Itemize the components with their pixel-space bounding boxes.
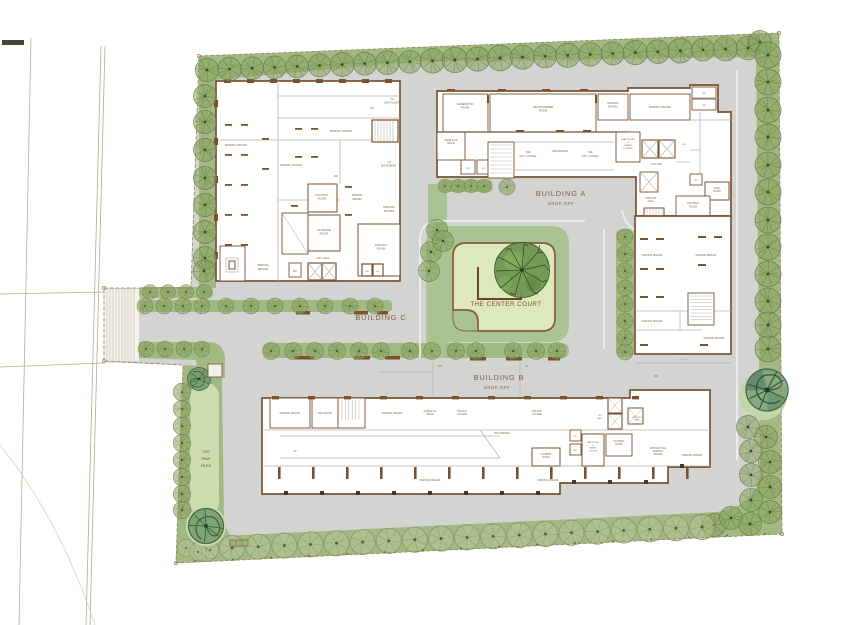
- svg-text:PARKING SPACES: PARKING SPACES: [649, 105, 672, 109]
- svg-text:2ND FLOOR: 2ND FLOOR: [384, 101, 400, 105]
- svg-text:ROOM: ROOM: [689, 205, 697, 208]
- svg-text:PARKING SPACES: PARKING SPACES: [642, 254, 663, 257]
- svg-text:MAIL ROOM: MAIL ROOM: [587, 441, 599, 444]
- svg-text:THE ARRIVAL: THE ARRIVAL: [552, 149, 569, 153]
- svg-text:ROOM: ROOM: [377, 247, 386, 251]
- svg-text:PARKING SPACES: PARKING SPACES: [280, 163, 303, 167]
- svg-text:PARKING: PARKING: [352, 194, 363, 197]
- svg-text:PARKING: PARKING: [653, 450, 663, 453]
- svg-text:PARKING SPACES: PARKING SPACES: [642, 320, 663, 323]
- svg-text:GENERATOR: GENERATOR: [457, 102, 474, 106]
- svg-text:SPACES: SPACES: [384, 209, 395, 213]
- svg-text:SPACE: SPACE: [447, 142, 455, 145]
- svg-text:ROOM: ROOM: [461, 106, 470, 110]
- svg-text:PARKING SPACES: PARKING SPACES: [696, 254, 717, 257]
- svg-text:DROP OFF: DROP OFF: [548, 201, 574, 206]
- svg-text:UP: UP: [370, 106, 374, 110]
- svg-text:PARKING SPACES: PARKING SPACES: [280, 412, 301, 415]
- svg-text:PARKING SPACES: PARKING SPACES: [682, 454, 702, 457]
- svg-text:SPACE: SPACE: [426, 413, 434, 416]
- svg-text:BUILDING B: BUILDING B: [474, 373, 525, 382]
- svg-text:SH: SH: [365, 271, 368, 273]
- svg-text:WC: WC: [482, 168, 486, 170]
- svg-text:SPACES: SPACES: [653, 453, 663, 456]
- svg-text:THE CENTER COURT: THE CENTER COURT: [470, 301, 541, 308]
- svg-text:SMART: SMART: [589, 447, 597, 450]
- svg-text:LIFT HALL: LIFT HALL: [316, 256, 330, 260]
- svg-text:UP: UP: [525, 366, 529, 368]
- svg-text:DAY LOUNGE: DAY LOUNGE: [582, 154, 599, 158]
- svg-text:BUILDING C: BUILDING C: [355, 313, 406, 322]
- svg-text:LOCKER: LOCKER: [624, 148, 633, 150]
- svg-text:SMART: SMART: [624, 144, 632, 147]
- svg-text:LOCKER: LOCKER: [589, 450, 598, 452]
- svg-text:PARKING: PARKING: [383, 205, 394, 209]
- svg-text:PARKING SPACES: PARKING SPACES: [225, 143, 248, 147]
- svg-text:ROOM: ROOM: [615, 444, 622, 446]
- svg-text:PAW: PAW: [202, 456, 211, 461]
- svg-text:LOUNGE: LOUNGE: [457, 413, 468, 416]
- svg-text:PARKING SPACES: PARKING SPACES: [704, 337, 725, 340]
- svg-text:DN: DN: [334, 174, 338, 178]
- svg-text:PARKING SPACES: PARKING SPACES: [382, 412, 403, 415]
- svg-text:WC: WC: [293, 270, 297, 273]
- svg-text:ROOM: ROOM: [542, 457, 549, 459]
- svg-text:PARKING SPACES: PARKING SPACES: [420, 479, 441, 482]
- svg-text:RWU ROOM: RWU ROOM: [318, 412, 332, 415]
- svg-text:PARKING SPACES: PARKING SPACES: [330, 129, 353, 133]
- svg-text:THE: THE: [525, 150, 530, 154]
- svg-text:ROOM: ROOM: [320, 232, 329, 236]
- svg-text:WC: WC: [466, 168, 470, 170]
- svg-text:WC: WC: [376, 271, 380, 273]
- svg-text:PARK: PARK: [201, 463, 212, 468]
- svg-text:LIFT HALL: LIFT HALL: [651, 163, 663, 166]
- svg-text:SPACES: SPACES: [352, 198, 362, 201]
- svg-text:HALL: HALL: [648, 200, 655, 203]
- svg-text:UP: UP: [293, 450, 297, 453]
- svg-text:ROOM: ROOM: [318, 197, 327, 201]
- svg-text:DN: DN: [654, 376, 658, 378]
- svg-text:MOTORCYCLE: MOTORCYCLE: [650, 448, 667, 450]
- svg-text:SPACES: SPACES: [608, 105, 618, 108]
- svg-text:HALL: HALL: [634, 419, 640, 422]
- svg-text:CONTROL: CONTROL: [613, 441, 625, 443]
- svg-text:THE ARRIVAL: THE ARRIVAL: [494, 432, 511, 435]
- svg-text:LAUNDRY: LAUNDRY: [541, 453, 552, 456]
- svg-text:GB: GB: [702, 93, 706, 95]
- svg-text:WC: WC: [694, 180, 698, 182]
- svg-text:LIFT: LIFT: [598, 415, 603, 417]
- svg-text:BUILDING A: BUILDING A: [536, 189, 586, 198]
- svg-text:TRANSFORMER: TRANSFORMER: [533, 105, 554, 109]
- svg-text:MAIL ROOM: MAIL ROOM: [622, 138, 635, 141]
- svg-text:MAID: MAID: [714, 187, 720, 190]
- svg-text:PARKING: PARKING: [257, 263, 268, 267]
- svg-text:DROP OFF: DROP OFF: [484, 385, 510, 390]
- svg-text:GRAB & GO: GRAB & GO: [424, 410, 437, 413]
- svg-text:ROOM: ROOM: [713, 191, 720, 193]
- svg-text:GB: GB: [702, 105, 706, 107]
- svg-text:THE: THE: [587, 150, 592, 154]
- svg-text:ROOM: ROOM: [539, 109, 548, 113]
- svg-text:SPACES: SPACES: [258, 267, 269, 271]
- svg-text:DAY LOUNGE: DAY LOUNGE: [520, 154, 537, 158]
- svg-text:DN: DN: [438, 366, 442, 368]
- svg-text:LOUNGE: LOUNGE: [532, 413, 543, 416]
- svg-text:90 / DUT: 90 / DUT: [679, 359, 688, 361]
- svg-text:PARKING SPACES: PARKING SPACES: [538, 479, 559, 482]
- svg-text:HALL: HALL: [597, 417, 603, 420]
- svg-text:BASEMENT: BASEMENT: [381, 164, 397, 168]
- svg-text:THE: THE: [202, 449, 210, 454]
